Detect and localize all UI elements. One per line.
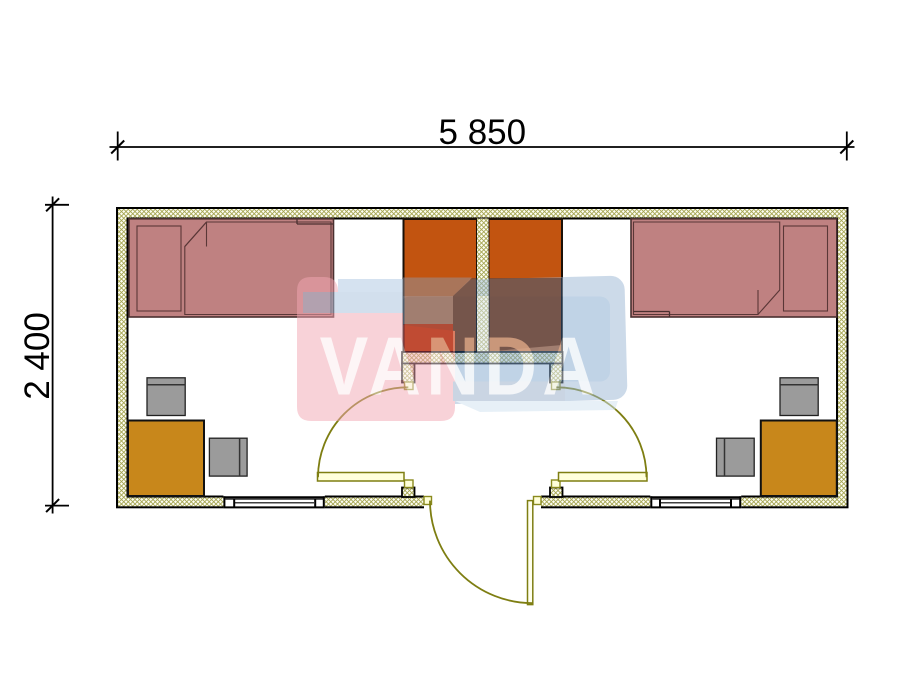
- svg-text:VANDA: VANDA: [320, 319, 601, 412]
- svg-text:5 850: 5 850: [439, 113, 527, 152]
- svg-text:2 400: 2 400: [18, 312, 57, 400]
